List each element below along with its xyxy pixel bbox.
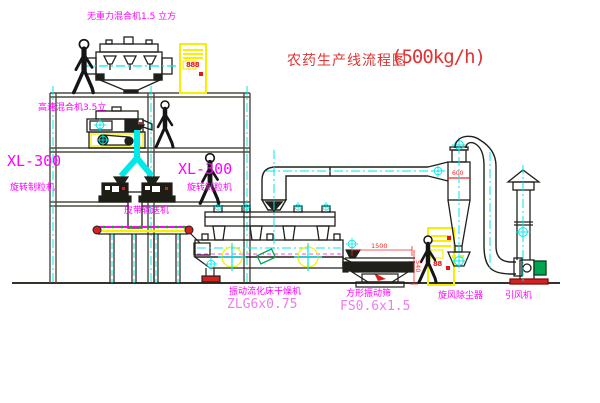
granulator-right (139, 177, 175, 202)
flange-mark-icon (516, 225, 530, 239)
label-dryer-model: ZLG6x0.75 (227, 298, 297, 311)
label-granulator-left-model: XL-300 (7, 154, 61, 169)
exhaust-duct (262, 150, 448, 250)
granulator-left (99, 177, 131, 202)
level-target-icon (218, 243, 246, 271)
cabinet-top-display: 888 (186, 62, 199, 69)
cyclone-separator (448, 140, 470, 272)
label-high-speed-mixer: 高速混合机3.5立 (38, 104, 106, 113)
dimension-sieve-length: 1500 (371, 243, 388, 250)
label-granulator-right-name: 旋转制粒机 (187, 184, 232, 193)
dimension-cyclone: 600 (452, 171, 463, 177)
label-cyclone: 旋风除尘器 (438, 292, 483, 301)
label-granulator-left-name: 旋转制粒机 (10, 184, 55, 193)
label-sieve-name: 方形振动筛 (346, 290, 391, 299)
cabinet-right-display: 88 (433, 261, 442, 268)
label-dryer-name: 振动流化床干燥机 (229, 288, 301, 297)
label-granulator-right-model: XL-300 (178, 162, 232, 177)
gravity-free-mixer (82, 37, 176, 93)
cad-drawing-canvas: 无重力混合机1.5 立方 高速混合机3.5立 XL-300 旋转制粒机 XL-3… (0, 0, 600, 403)
label-fan: 引风机 (505, 292, 532, 301)
dimension-sieve-height: 540 (415, 260, 422, 272)
drawing-title: 农药生产线流程图 (287, 54, 407, 68)
flange-mark-icon (432, 165, 445, 178)
label-belt-conveyor: 皮带输送机 (124, 207, 169, 216)
cyclone-to-fan-pipe (455, 136, 516, 274)
drawing-capacity: (500kg/h) (391, 48, 485, 67)
label-gravity-mixer: 无重力混合机1.5 立方 (87, 13, 176, 22)
flange-mark-icon (346, 238, 359, 251)
belt-conveyor (93, 226, 200, 283)
label-sieve-model: FS0.6x1.5 (340, 300, 410, 313)
vibrating-sieve (343, 246, 418, 287)
level-target-icon (294, 243, 322, 271)
person-roof-icon (74, 40, 94, 93)
person-second-floor-icon (156, 101, 173, 147)
